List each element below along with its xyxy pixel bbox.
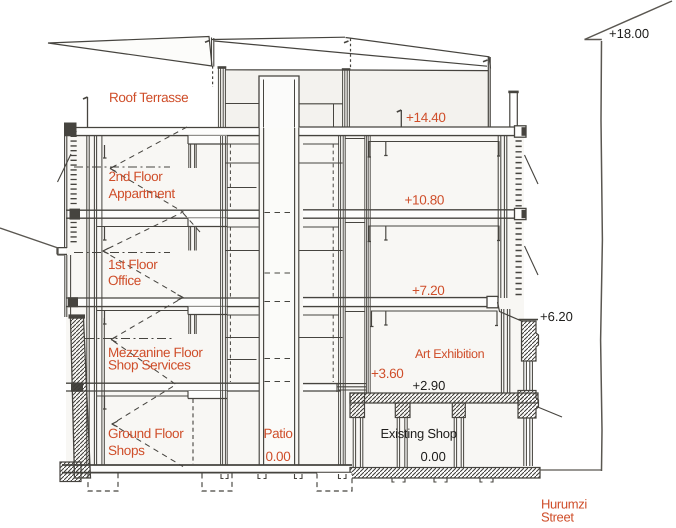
svg-text:+2.90: +2.90 [413,378,446,393]
svg-text:+18.00: +18.00 [609,26,649,41]
svg-text:Art Exhibition: Art Exhibition [415,347,485,361]
svg-text:+14.40: +14.40 [406,110,446,125]
svg-text:Roof Terrasse: Roof Terrasse [109,90,188,105]
svg-text:Existing Shop: Existing Shop [381,426,457,441]
svg-text:Patio: Patio [264,426,293,441]
svg-text:0.00: 0.00 [421,449,446,464]
svg-text:+3.60: +3.60 [371,366,403,381]
svg-text:Ground Floor: Ground Floor [108,426,184,441]
svg-text:2nd Floor: 2nd Floor [109,169,164,184]
svg-text:Street: Street [541,510,574,525]
svg-text:1st Floor: 1st Floor [108,257,158,272]
svg-text:+6.20: +6.20 [540,309,573,324]
svg-text:Shops: Shops [108,443,145,458]
svg-text:+7.20: +7.20 [412,283,444,298]
svg-text:+10.80: +10.80 [405,193,445,208]
svg-text:0.00: 0.00 [266,449,291,464]
svg-text:Appartment: Appartment [109,186,176,201]
svg-text:Shop Services: Shop Services [108,358,191,373]
svg-text:Office: Office [108,273,141,288]
